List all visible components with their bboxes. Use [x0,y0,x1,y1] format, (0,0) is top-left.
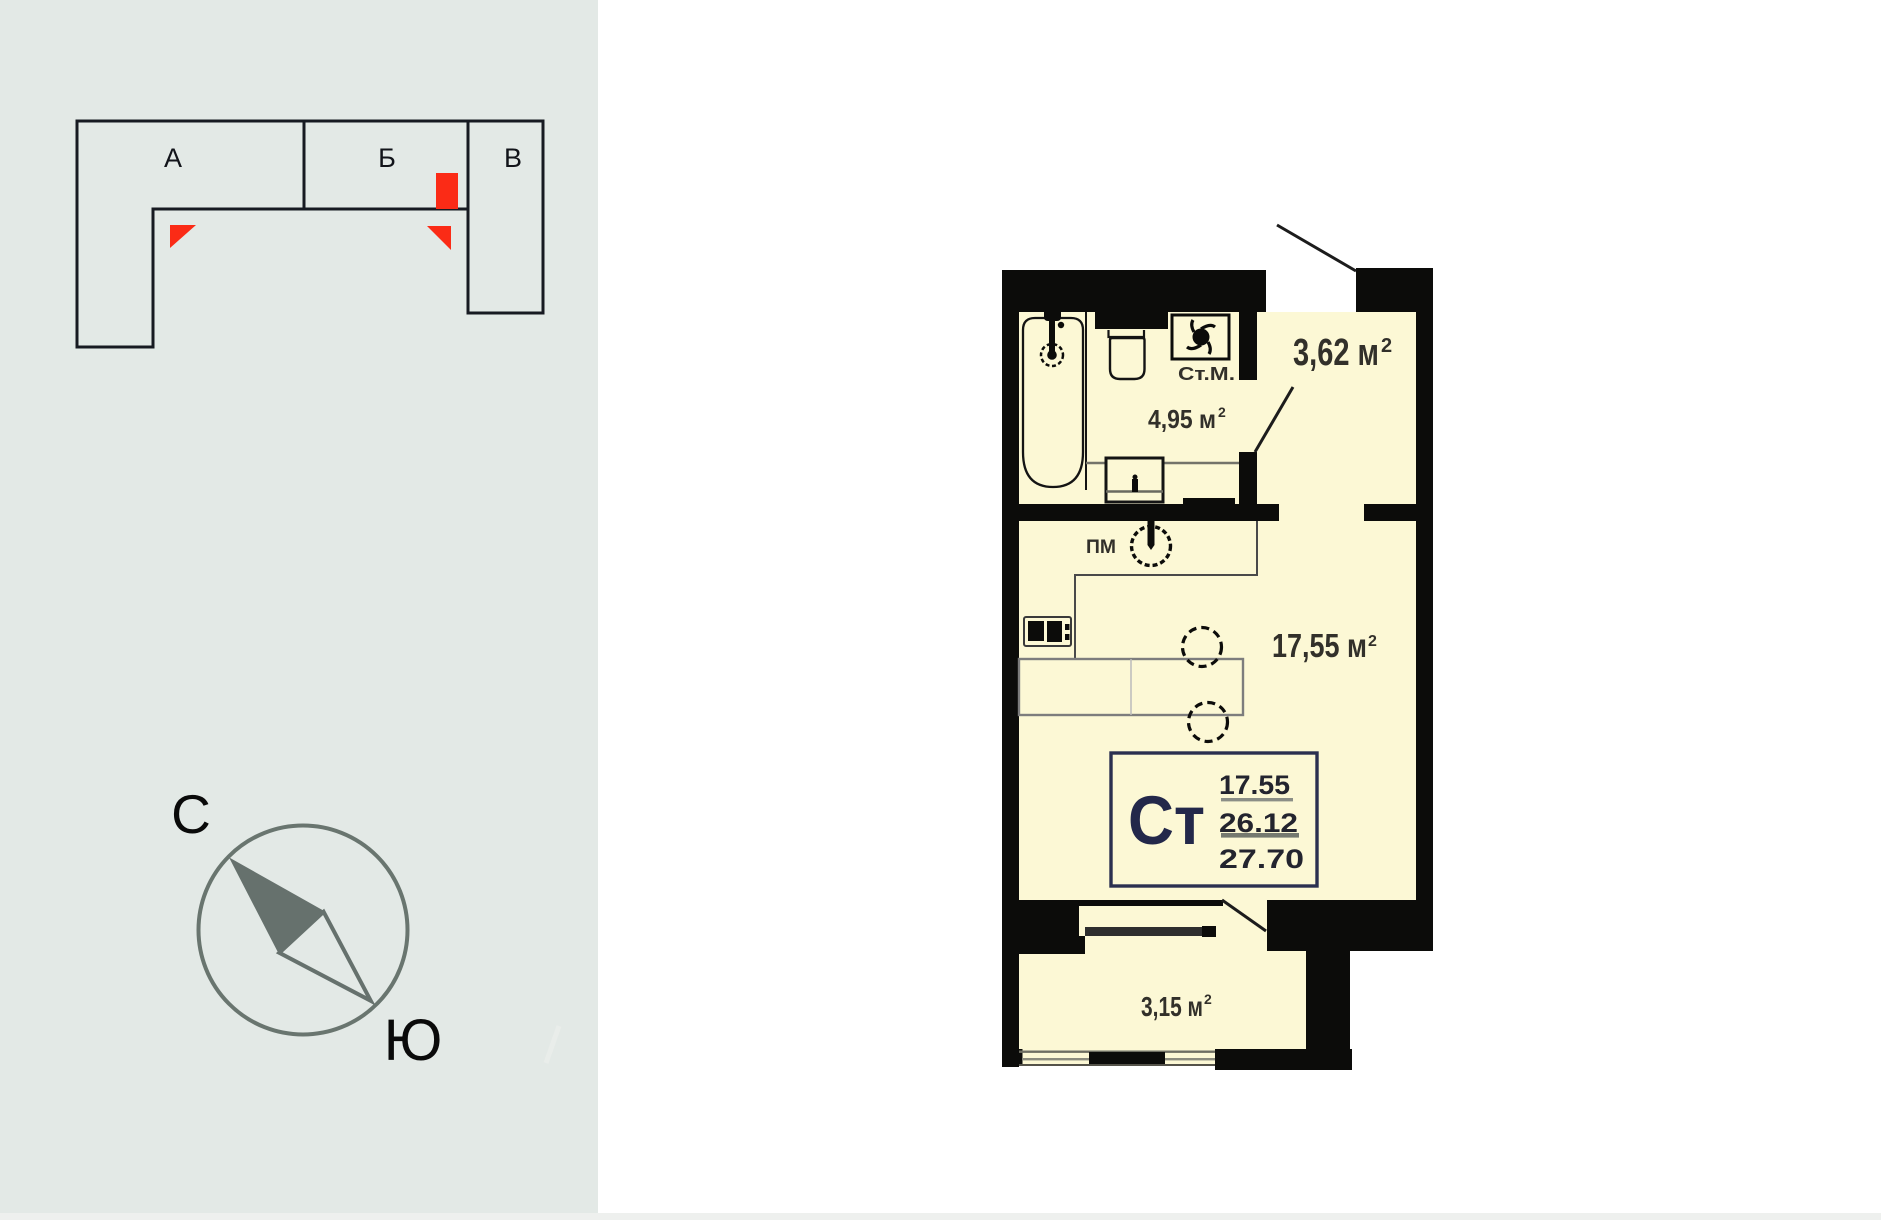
svg-text:А: А [164,143,182,173]
svg-text:Ст.М.: Ст.М. [1178,364,1235,384]
svg-text:С: С [171,783,211,845]
svg-text:2: 2 [1204,991,1212,1007]
svg-text:Б: Б [378,143,396,173]
svg-text:17,55 м: 17,55 м [1272,627,1367,664]
svg-text:4,95 м: 4,95 м [1148,404,1216,434]
svg-text:3,15 м: 3,15 м [1141,991,1203,1022]
svg-text:2: 2 [1381,335,1392,357]
svg-text:3,62 м: 3,62 м [1293,332,1379,374]
svg-text:Ст: Ст [1128,782,1205,859]
svg-text:27.70: 27.70 [1219,844,1304,874]
svg-text:ПМ: ПМ [1086,537,1116,558]
svg-text:В: В [504,143,522,173]
svg-text:2: 2 [1218,404,1226,420]
svg-text:2: 2 [1368,633,1377,650]
svg-text:Ю: Ю [384,1008,443,1073]
svg-text:17.55: 17.55 [1219,770,1290,800]
